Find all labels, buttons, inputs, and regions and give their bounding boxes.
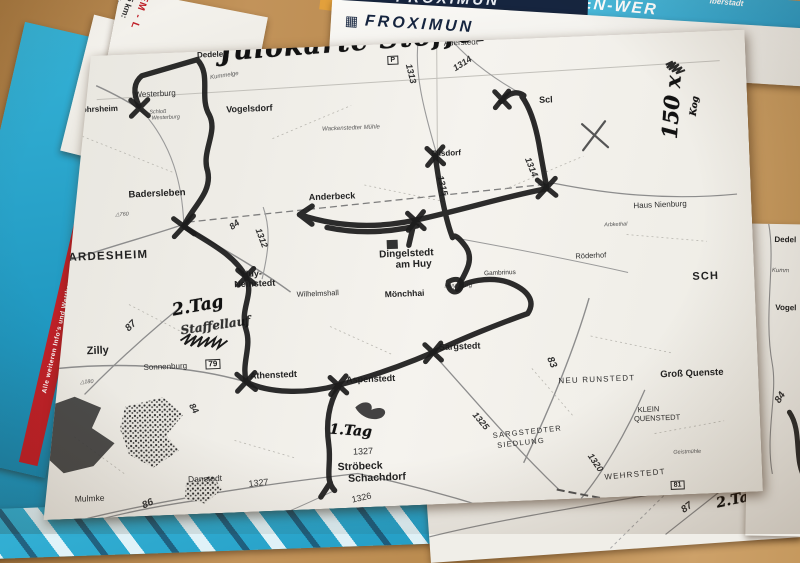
handwritten-day1-label: 1.Tag <box>329 423 372 440</box>
froximun-wordmark: FROXIMUN <box>364 14 474 37</box>
place-label: Vogel <box>775 304 796 312</box>
handwritten-copy-count: 150 x <box>659 75 684 140</box>
place-label: Dedel <box>774 236 796 244</box>
main-map-sheet: Dedeleb P 78 Westerburg Rohrsheim Schloß… <box>19 30 763 521</box>
route-marker-drawing <box>19 30 763 521</box>
froximun-logo-icon: ▦ <box>344 12 358 30</box>
photo-of-route-map-on-desk: { "handwriting": { "title": "Julokarte S… <box>0 0 800 534</box>
place-label: Kumm <box>772 268 789 274</box>
banner-corner-text: lberstadt <box>709 0 743 8</box>
